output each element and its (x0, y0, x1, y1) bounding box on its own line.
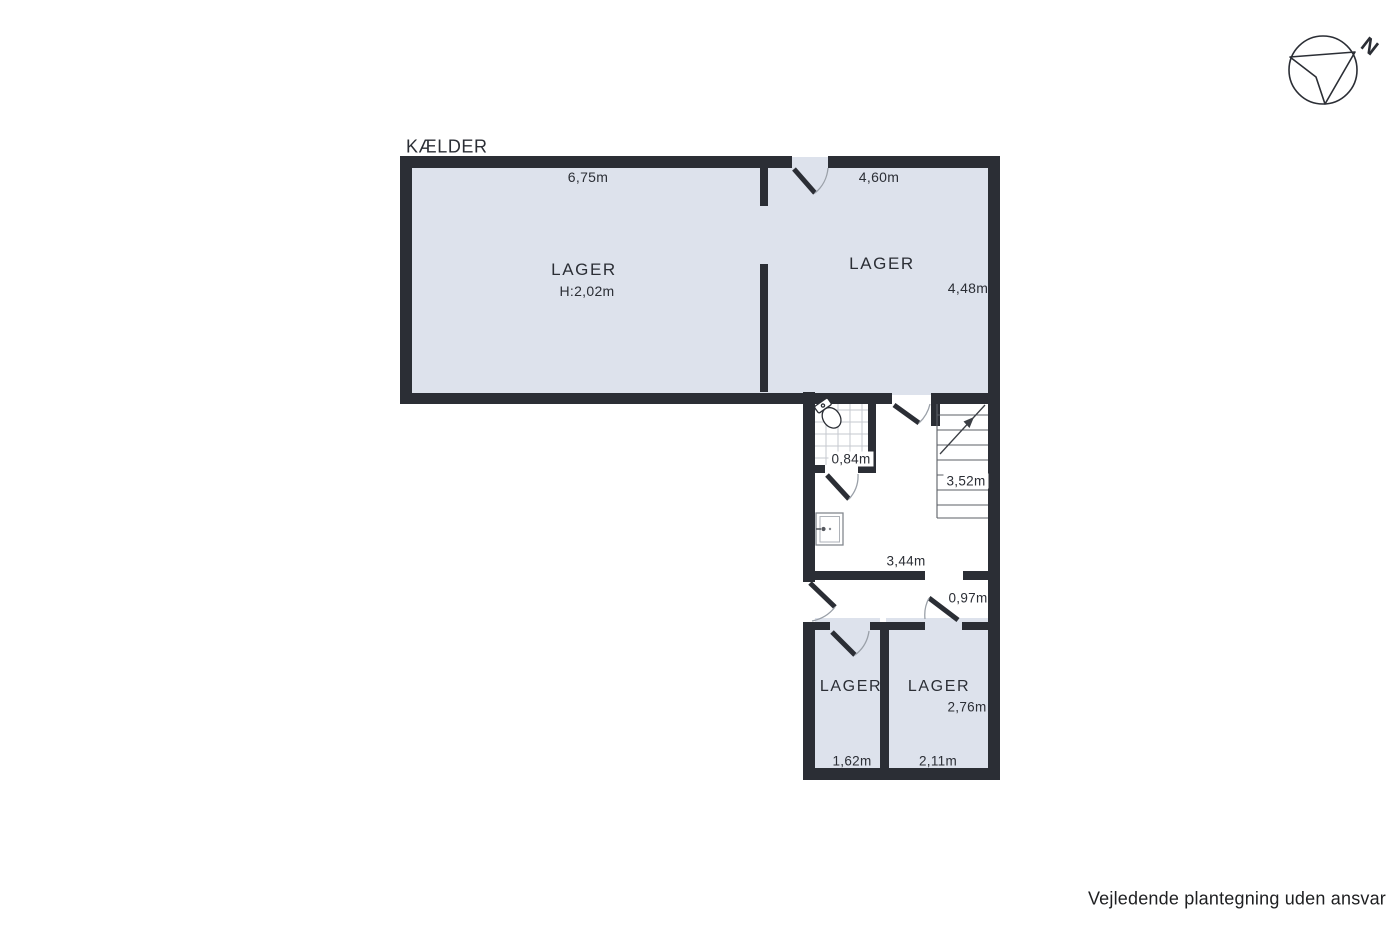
wall-segment (760, 264, 768, 392)
top-door-gap-floor (792, 157, 828, 168)
wall-segment (931, 398, 940, 426)
wall-segment (828, 156, 1000, 168)
wall-segment (760, 166, 768, 206)
room-label-storage-large-right: LAGER (849, 254, 915, 274)
dim-small-right-depth: 2,76m (947, 700, 986, 715)
dim-bathroom-width: 0,84m (828, 452, 873, 467)
wall-segment (931, 393, 1000, 404)
wall-segment (988, 156, 1000, 780)
disclaimer-text: Vejledende plantegning uden ansvar (1088, 889, 1386, 910)
dim-ceiling-height: H:2,02m (559, 283, 614, 299)
wall-segment (400, 156, 792, 168)
wall-segment (803, 392, 815, 582)
floor-plan-drawing (0, 0, 1400, 933)
dim-hallway-door: 0,97m (948, 591, 987, 606)
wall-segment (963, 571, 988, 580)
dim-large-right-width: 4,60m (859, 169, 899, 185)
wall-segment (803, 622, 830, 630)
dim-stairwell-depth: 3,52m (943, 474, 988, 489)
wall-segment (803, 622, 815, 780)
plan-title: KÆLDER (406, 137, 488, 158)
floor-plan-page: KÆLDER 6,75m 4,60m LAGER H:2,02m LAGER 4… (0, 0, 1400, 933)
wall-segment (815, 465, 825, 473)
wall-segment (870, 622, 925, 630)
wall-segment (803, 571, 925, 580)
dim-large-right-depth: 4,48m (948, 280, 988, 296)
compass-icon (1289, 36, 1357, 104)
dim-small-left-width: 1,62m (832, 754, 871, 769)
wall-segment (400, 393, 892, 404)
dim-hallway-width: 3,44m (886, 554, 925, 569)
sink-icon (816, 513, 843, 545)
dim-large-left-width: 6,75m (568, 169, 608, 185)
room-label-storage-small-right: LAGER (908, 678, 970, 696)
wall-segment (803, 768, 1000, 780)
room-label-storage-small-left: LAGER (820, 678, 882, 696)
wall-segment (400, 156, 412, 404)
storage-large-floor (406, 162, 994, 395)
wall-segment (880, 630, 889, 770)
wall-segment (962, 622, 988, 630)
dim-small-right-width: 2,11m (919, 754, 957, 769)
room-label-storage-large-left: LAGER (551, 260, 617, 280)
